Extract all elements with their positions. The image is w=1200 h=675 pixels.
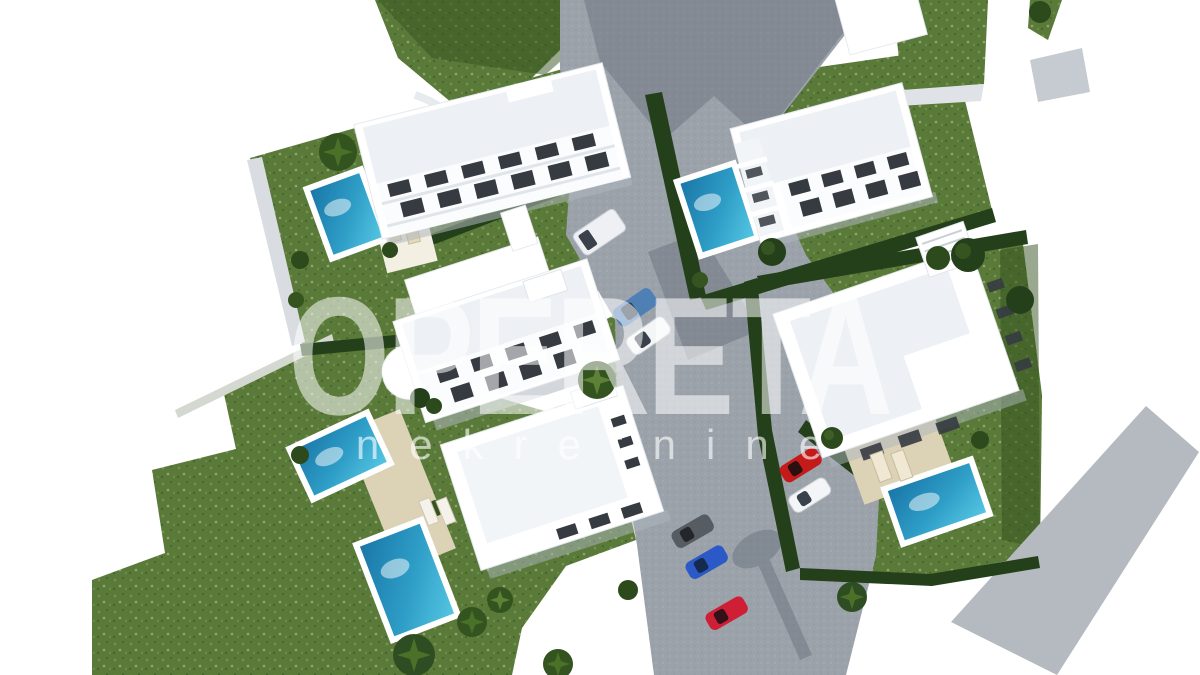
palm-tree (578, 361, 616, 399)
site-plan-render: OPERETA nekretnine (0, 0, 1200, 675)
bush (821, 427, 843, 449)
palm-tree (393, 634, 435, 675)
palm-tree (319, 133, 357, 171)
tree (1006, 286, 1034, 314)
palm-tree (837, 582, 867, 612)
bush (971, 431, 989, 449)
bush (692, 272, 708, 288)
bush (288, 292, 304, 308)
bush (291, 446, 309, 464)
tree (951, 238, 985, 272)
driveway-top-right (1030, 48, 1090, 102)
bush (291, 251, 309, 269)
bush (382, 242, 398, 258)
tree (926, 246, 950, 270)
scene-svg (0, 0, 1200, 675)
bush (1029, 1, 1051, 23)
bush (618, 580, 638, 600)
palm-tree (457, 607, 487, 637)
palm-tree (543, 649, 573, 675)
tree (758, 238, 786, 266)
palm-tree (487, 587, 513, 613)
